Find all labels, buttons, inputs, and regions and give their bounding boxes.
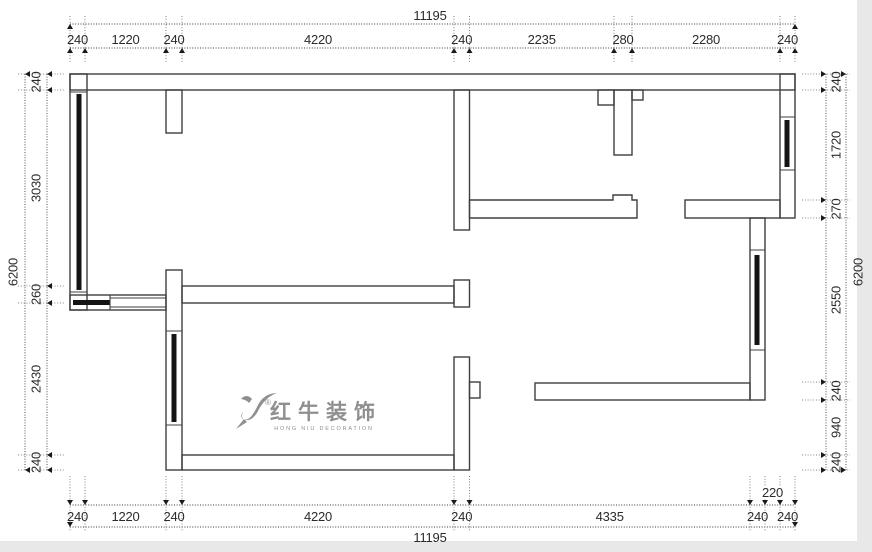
- dim-top-seg-3: 4220: [304, 32, 332, 47]
- dim-right-seg-0: 240: [829, 71, 844, 92]
- wall-stub-top-left: [166, 90, 182, 133]
- dim-left-seg-0: 240: [29, 71, 44, 92]
- dim-right-seg-3: 2550: [829, 286, 844, 314]
- pier-hall-notch: [470, 382, 481, 398]
- wall-lowerroom-bottom: [182, 455, 454, 470]
- wall-interior-horizontal-g: [535, 383, 750, 400]
- dim-right-seg-4: 240: [829, 380, 844, 401]
- floorplan-drawing: 11195 240 1220 240 4220 240 2235 280 228…: [0, 0, 872, 552]
- wall-stub-e-right: [632, 90, 643, 100]
- dim-bottom-seg-3: 4220: [304, 509, 332, 524]
- window-sill-glazing: [73, 300, 110, 305]
- dimension-lines: [25, 24, 846, 527]
- pier-door-left: [454, 280, 470, 307]
- wall-stub-e-left: [598, 90, 614, 105]
- dim-top-seg-1: 1220: [111, 32, 139, 47]
- wall-top-exterior: [70, 74, 795, 90]
- dim-bottom-seg-4: 240: [451, 509, 472, 524]
- dim-bottom-seg-7: 240: [777, 509, 798, 524]
- dim-left-seg-2: 260: [29, 284, 44, 305]
- dim-bottom-seg-6: 240: [747, 509, 768, 524]
- window-right-glazing: [785, 120, 790, 167]
- wall-corridor-c1: [470, 195, 638, 218]
- wall-corridor-c2: [685, 200, 780, 218]
- window-lowerroom-glazing: [172, 334, 177, 422]
- brand-subtitle: HONG NIU DECORATION: [274, 426, 374, 432]
- window-left-glazing: [77, 94, 82, 290]
- dim-right-seg-5: 940: [829, 417, 844, 438]
- dim-bottom-seg-5: 4335: [596, 509, 624, 524]
- window-sill-lines: [110, 295, 166, 310]
- dim-top-seg-2: 240: [163, 32, 184, 47]
- walls-group: [70, 74, 795, 470]
- dim-top-seg-6: 280: [612, 32, 633, 47]
- dim-bottom-seg-0: 240: [67, 509, 88, 524]
- dim-top-seg-4: 240: [451, 32, 472, 47]
- dim-bottom-total: 11195: [413, 530, 446, 545]
- dim-top-total: 11195: [413, 8, 446, 23]
- dim-right-total: 6200: [851, 258, 866, 286]
- dim-left-seg-3: 2430: [29, 365, 44, 393]
- dim-bottom-seg-1: 1220: [111, 509, 139, 524]
- dim-bottom-raised: 220: [762, 485, 783, 500]
- windows-group: [70, 92, 795, 425]
- wall-interior-vertical-a: [454, 90, 470, 230]
- dim-top-seg-7: 2280: [692, 32, 720, 47]
- wall-interior-vertical-e: [614, 90, 632, 155]
- brand-name: 红牛装饰: [270, 400, 382, 424]
- watermark-group: ® 红牛装饰 HONG NIU DECORATION: [236, 393, 382, 432]
- dim-right-seg-6: 240: [829, 452, 844, 473]
- wall-lowerroom-right: [454, 357, 470, 470]
- dim-left-seg-4: 240: [29, 452, 44, 473]
- dim-top-seg-5: 2235: [528, 32, 556, 47]
- ticks-left: [25, 71, 52, 473]
- dim-left-seg-1: 3030: [29, 174, 44, 202]
- dimensions-group: 11195 240 1220 240 4220 240 2235 280 228…: [6, 8, 866, 545]
- dim-top-seg-0: 240: [67, 32, 88, 47]
- dim-right-seg-2: 270: [829, 198, 844, 219]
- window-f-glazing: [755, 255, 760, 345]
- dim-right-seg-1: 1720: [829, 131, 844, 159]
- dim-left-total: 6200: [6, 258, 21, 286]
- dim-top-seg-8: 240: [777, 32, 798, 47]
- dim-bottom-seg-2: 240: [163, 509, 184, 524]
- wall-interior-horizontal-b: [182, 286, 454, 303]
- floorplan-canvas: 11195 240 1220 240 4220 240 2235 280 228…: [0, 0, 872, 552]
